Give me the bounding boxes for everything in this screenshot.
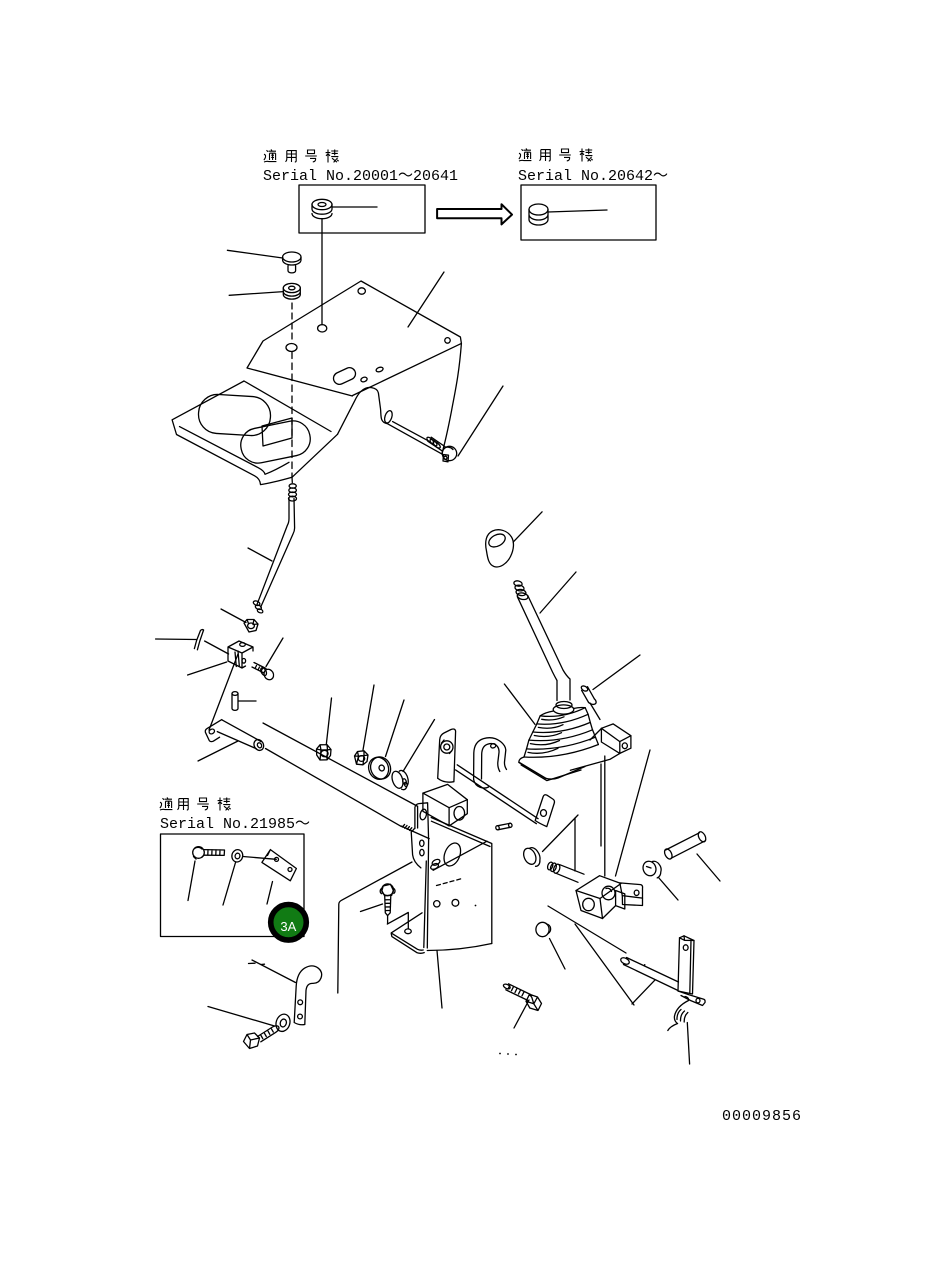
svg-text:Serial No.20001〜20641: Serial No.20001〜20641: [263, 168, 458, 185]
svg-text:Serial No.20642〜: Serial No.20642〜: [518, 168, 668, 185]
svg-text:3A: 3A: [280, 919, 296, 934]
svg-text:00009856: 00009856: [722, 1108, 802, 1125]
svg-text:Serial No.21985〜: Serial No.21985〜: [160, 816, 310, 833]
